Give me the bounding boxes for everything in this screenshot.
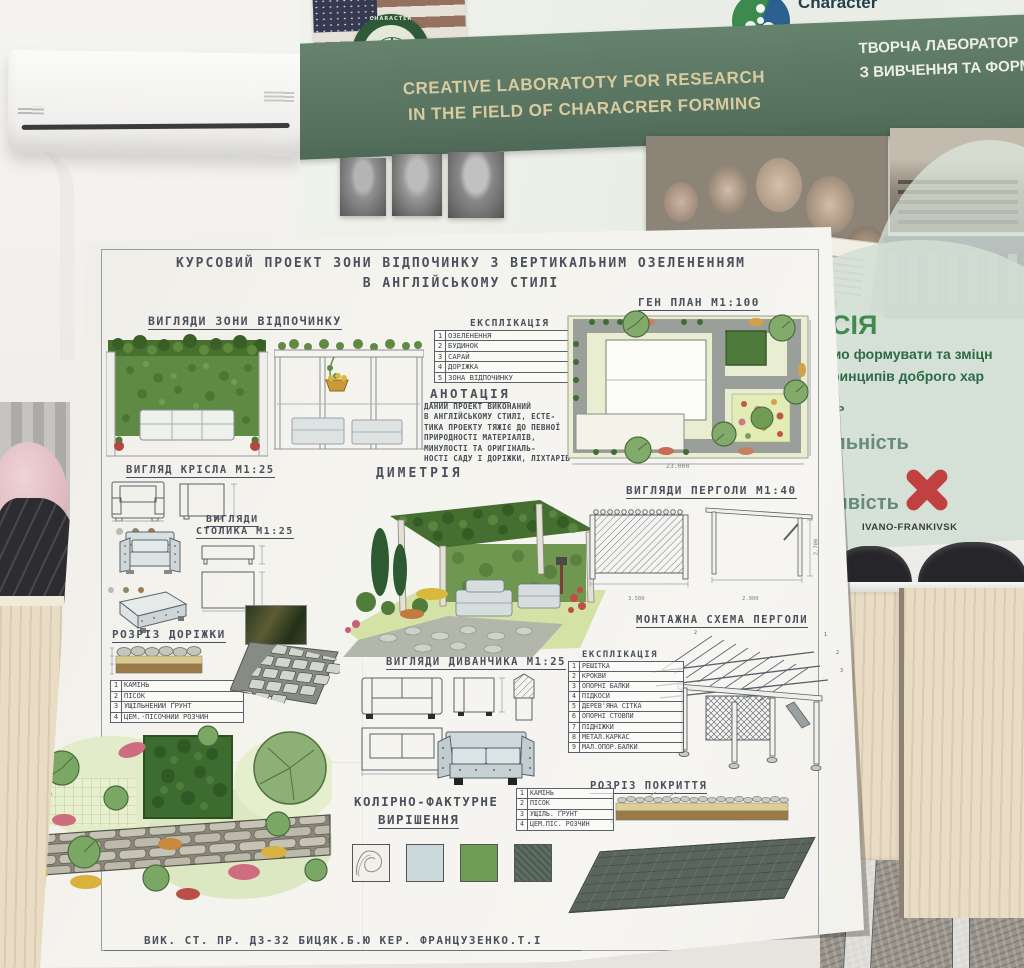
stone-path-drawing (230, 640, 340, 706)
svg-text:2: 2 (836, 650, 839, 656)
sofa-colored-drawing (436, 728, 540, 790)
banner-title-en: CREATIVE LABORATOTY FOR RESEARCH IN THE … (324, 62, 845, 131)
ac-vent (22, 123, 290, 130)
ac-brand-left (18, 106, 44, 114)
dimetry-drawing (328, 478, 624, 658)
legend-row: 4ЦЕМ.ПІС. РОЗЧИН (517, 820, 613, 829)
views-zone-heading: ВИГЛЯДИ ЗОНИ ВІДПОЧИНКУ (148, 314, 342, 330)
mission-heading: СІЯ (831, 310, 877, 341)
svg-text:1: 1 (824, 632, 827, 638)
chair-heading: ВИГЛЯД КРІСЛА М1:25 (126, 464, 275, 478)
legend-row: 4ПІДКОСИ (569, 692, 683, 702)
poster-title-line1: КУРСОВИЙ ПРОЕКТ ЗОНИ ВІДПОЧИНКУ З ВЕРТИК… (130, 256, 792, 271)
garden-plan-fragment (28, 724, 332, 908)
coating-drawing (610, 792, 794, 826)
mission-line-2: ринципів доброго хар (831, 368, 984, 384)
portrait-photo-1 (340, 158, 386, 216)
legend-row: 7ПІДНІЖКИ (569, 723, 683, 733)
svg-text:3: 3 (840, 668, 843, 674)
path-section-drawing (110, 644, 214, 678)
sofa-views-heading: ВИГЛЯДИ ДИВАНЧИКА М1:25 (386, 656, 566, 670)
table-line-drawings (198, 540, 302, 612)
air-conditioner (7, 50, 308, 156)
pergola-dim-2: 2.900 (742, 596, 759, 602)
legend-row: 4ЦЕМ.-ПІСОЧНИЙ РОЗЧИН (111, 713, 243, 723)
path-section-heading: РОЗРІЗ ДОРІЖКИ (112, 628, 226, 643)
seal-text: CHARACTER (352, 16, 430, 22)
annotation-heading: АНОТАЦІЯ (430, 386, 510, 403)
coating-legend-table: 1КАМІНЬ2ПІСОК3УЩІЛЬ. ҐРУНТ4ЦЕМ.ПІС. РОЗЧ… (516, 788, 614, 831)
photo-scene: CHARACTER Character for Kids CREATIVE LA… (0, 0, 1024, 968)
explication1-heading: ЕКСПЛІКАЦІЯ (470, 318, 549, 329)
legend-row: 9МАЛ.ОПОР.БАЛКИ (569, 743, 683, 752)
desk-panel-right (904, 588, 1024, 918)
genplan-drawing (566, 310, 814, 468)
mission-line-1: мо формувати та зміцн (831, 346, 993, 362)
credit-line: ВИК. СТ. ПР. Д3-32 БИЦЯК.Б.Ю КЕР. ФРАНЦУ… (104, 934, 582, 951)
swatch-dark (514, 844, 552, 882)
wall-conduit (0, 150, 74, 360)
swatch-blue (406, 844, 444, 882)
pergola-dim-1: 3.500 (628, 596, 645, 602)
table-views-heading-2: СТОЛИКА М1:25 (196, 526, 294, 539)
explication2-table: 1РЕШІТКА2КРОКВИ3ОПОРНІ БАЛКИ4ПІДКОСИ5ДЕР… (568, 661, 684, 753)
swatch-wood (352, 844, 390, 882)
legend-row: 3УЩІЛЬНЕНИЙ ҐРУНТ (111, 702, 243, 713)
portrait-photo-3 (448, 152, 504, 218)
legend-row: 3УЩІЛЬ. ҐРУНТ (517, 810, 613, 820)
legend-row: 2КРОКВИ (569, 672, 683, 682)
desk-leg-2 (952, 910, 970, 968)
legend-row: 8МЕТАЛ.КАРКАС (569, 733, 683, 743)
pergola-view-green-drawing (106, 332, 268, 458)
ac-brand-right (264, 91, 294, 101)
legend-row: 3ОПОРНІ БАЛКИ (569, 682, 683, 692)
legend-row: 2ПІСОК (517, 799, 613, 809)
forest-photo (246, 606, 306, 644)
genplan-dimension: 23.000 (666, 462, 689, 470)
swatch-green (460, 844, 498, 882)
legend-row: 1КАМІНЬ (517, 789, 613, 799)
legend-row: 5ДЕРЕВ'ЯНА СІТКА (569, 702, 683, 712)
city-logo-text: IVANO-FRANKIVSK (862, 522, 957, 533)
path-legend-table: 1КАМІНЬ2ПІСОК3УЩІЛЬНЕНИЙ ҐРУНТ4ЦЕМ.-ПІСО… (110, 680, 244, 723)
legend-row: 6ОПОРНІ СТОВПИ (569, 712, 683, 722)
legend-row: 1КАМІНЬ (111, 681, 243, 692)
ivano-frankivsk-x-icon (898, 462, 954, 518)
pergola-dim-3: 2.700 (813, 539, 819, 556)
banner-title-ua: ТВОРЧА ЛАБОРАТОР З ВИВЧЕННЯ ТА ФОРМУВАНН… (858, 28, 1024, 85)
chair-colored-drawing (118, 530, 182, 574)
color-solution-heading-2: ВИРІШЕННЯ (378, 812, 459, 829)
legend-row: 1РЕШІТКА (569, 662, 683, 672)
black-bag (0, 498, 76, 608)
pergola-view-open-drawing (274, 334, 424, 456)
genplan-heading: ГЕН ПЛАН М1:100 (638, 296, 760, 311)
pergola-views-heading: ВИГЛЯДИ ПЕРГОЛИ М1:40 (626, 484, 797, 499)
color-solution-heading-1: КОЛІРНО-ФАКТУРНЕ (354, 794, 498, 809)
pergola-line-drawings (588, 500, 816, 596)
text-fragment-2: льність (833, 432, 909, 455)
svg-text:2: 2 (694, 630, 697, 636)
annotation-text: ДАНИЙ ПРОЕКТ ВИКОНАНИЙ В АНГЛІЙСЬКОМУ СТ… (424, 402, 570, 464)
legend-row: 2ПІСОК (111, 692, 243, 703)
explication2-heading: ЕКСПЛІКАЦІЯ (582, 650, 658, 660)
portrait-photo-2 (392, 154, 442, 216)
material-swatches (352, 844, 563, 882)
poster-title-line2: В АНГЛІЙСЬКОМУ СТИЛІ (130, 276, 792, 291)
logo-title: Character (798, 0, 877, 13)
